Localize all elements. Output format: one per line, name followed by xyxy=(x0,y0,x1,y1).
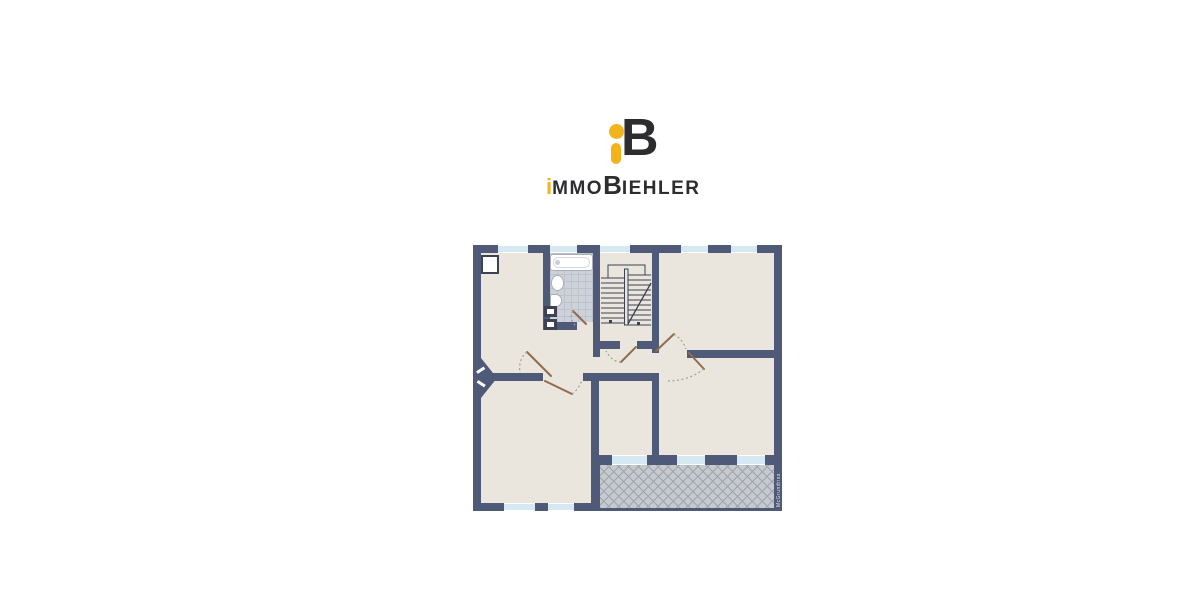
door-hall-center xyxy=(606,347,636,362)
stair-landing-outline xyxy=(608,265,645,278)
wordmark-b: B xyxy=(603,170,622,201)
door-bathroom xyxy=(571,311,586,326)
door-lower-left-room xyxy=(545,379,582,394)
wordmark-iehler: IEHLER xyxy=(622,178,701,200)
plan-symbols-layer xyxy=(473,245,782,511)
monogram-b-letter: B xyxy=(621,112,658,164)
page-canvas: B i MMO B IEHLER xyxy=(0,0,1200,600)
stair-treads-left xyxy=(601,278,624,323)
floor-plan: McGrundriss xyxy=(473,245,782,511)
door-middle-right-room xyxy=(668,353,704,381)
entrance-door xyxy=(476,358,497,398)
brand-wordmark: i MMO B IEHLER xyxy=(546,170,746,201)
brand-logo: B i MMO B IEHLER xyxy=(0,0,1200,230)
stair-start-dot xyxy=(637,322,640,325)
door-top-left-room xyxy=(520,352,551,376)
entrance-wedge xyxy=(481,358,497,398)
stair-start-dot xyxy=(609,320,612,323)
monogram-i-stem-icon xyxy=(611,143,621,164)
staircase xyxy=(601,265,651,325)
watermark-text: McGrundriss xyxy=(776,463,782,507)
wordmark-immo: MMO xyxy=(552,178,603,200)
door-top-right-room xyxy=(656,334,686,351)
stair-cut-line xyxy=(628,283,651,324)
stair-center-wall xyxy=(625,269,629,325)
